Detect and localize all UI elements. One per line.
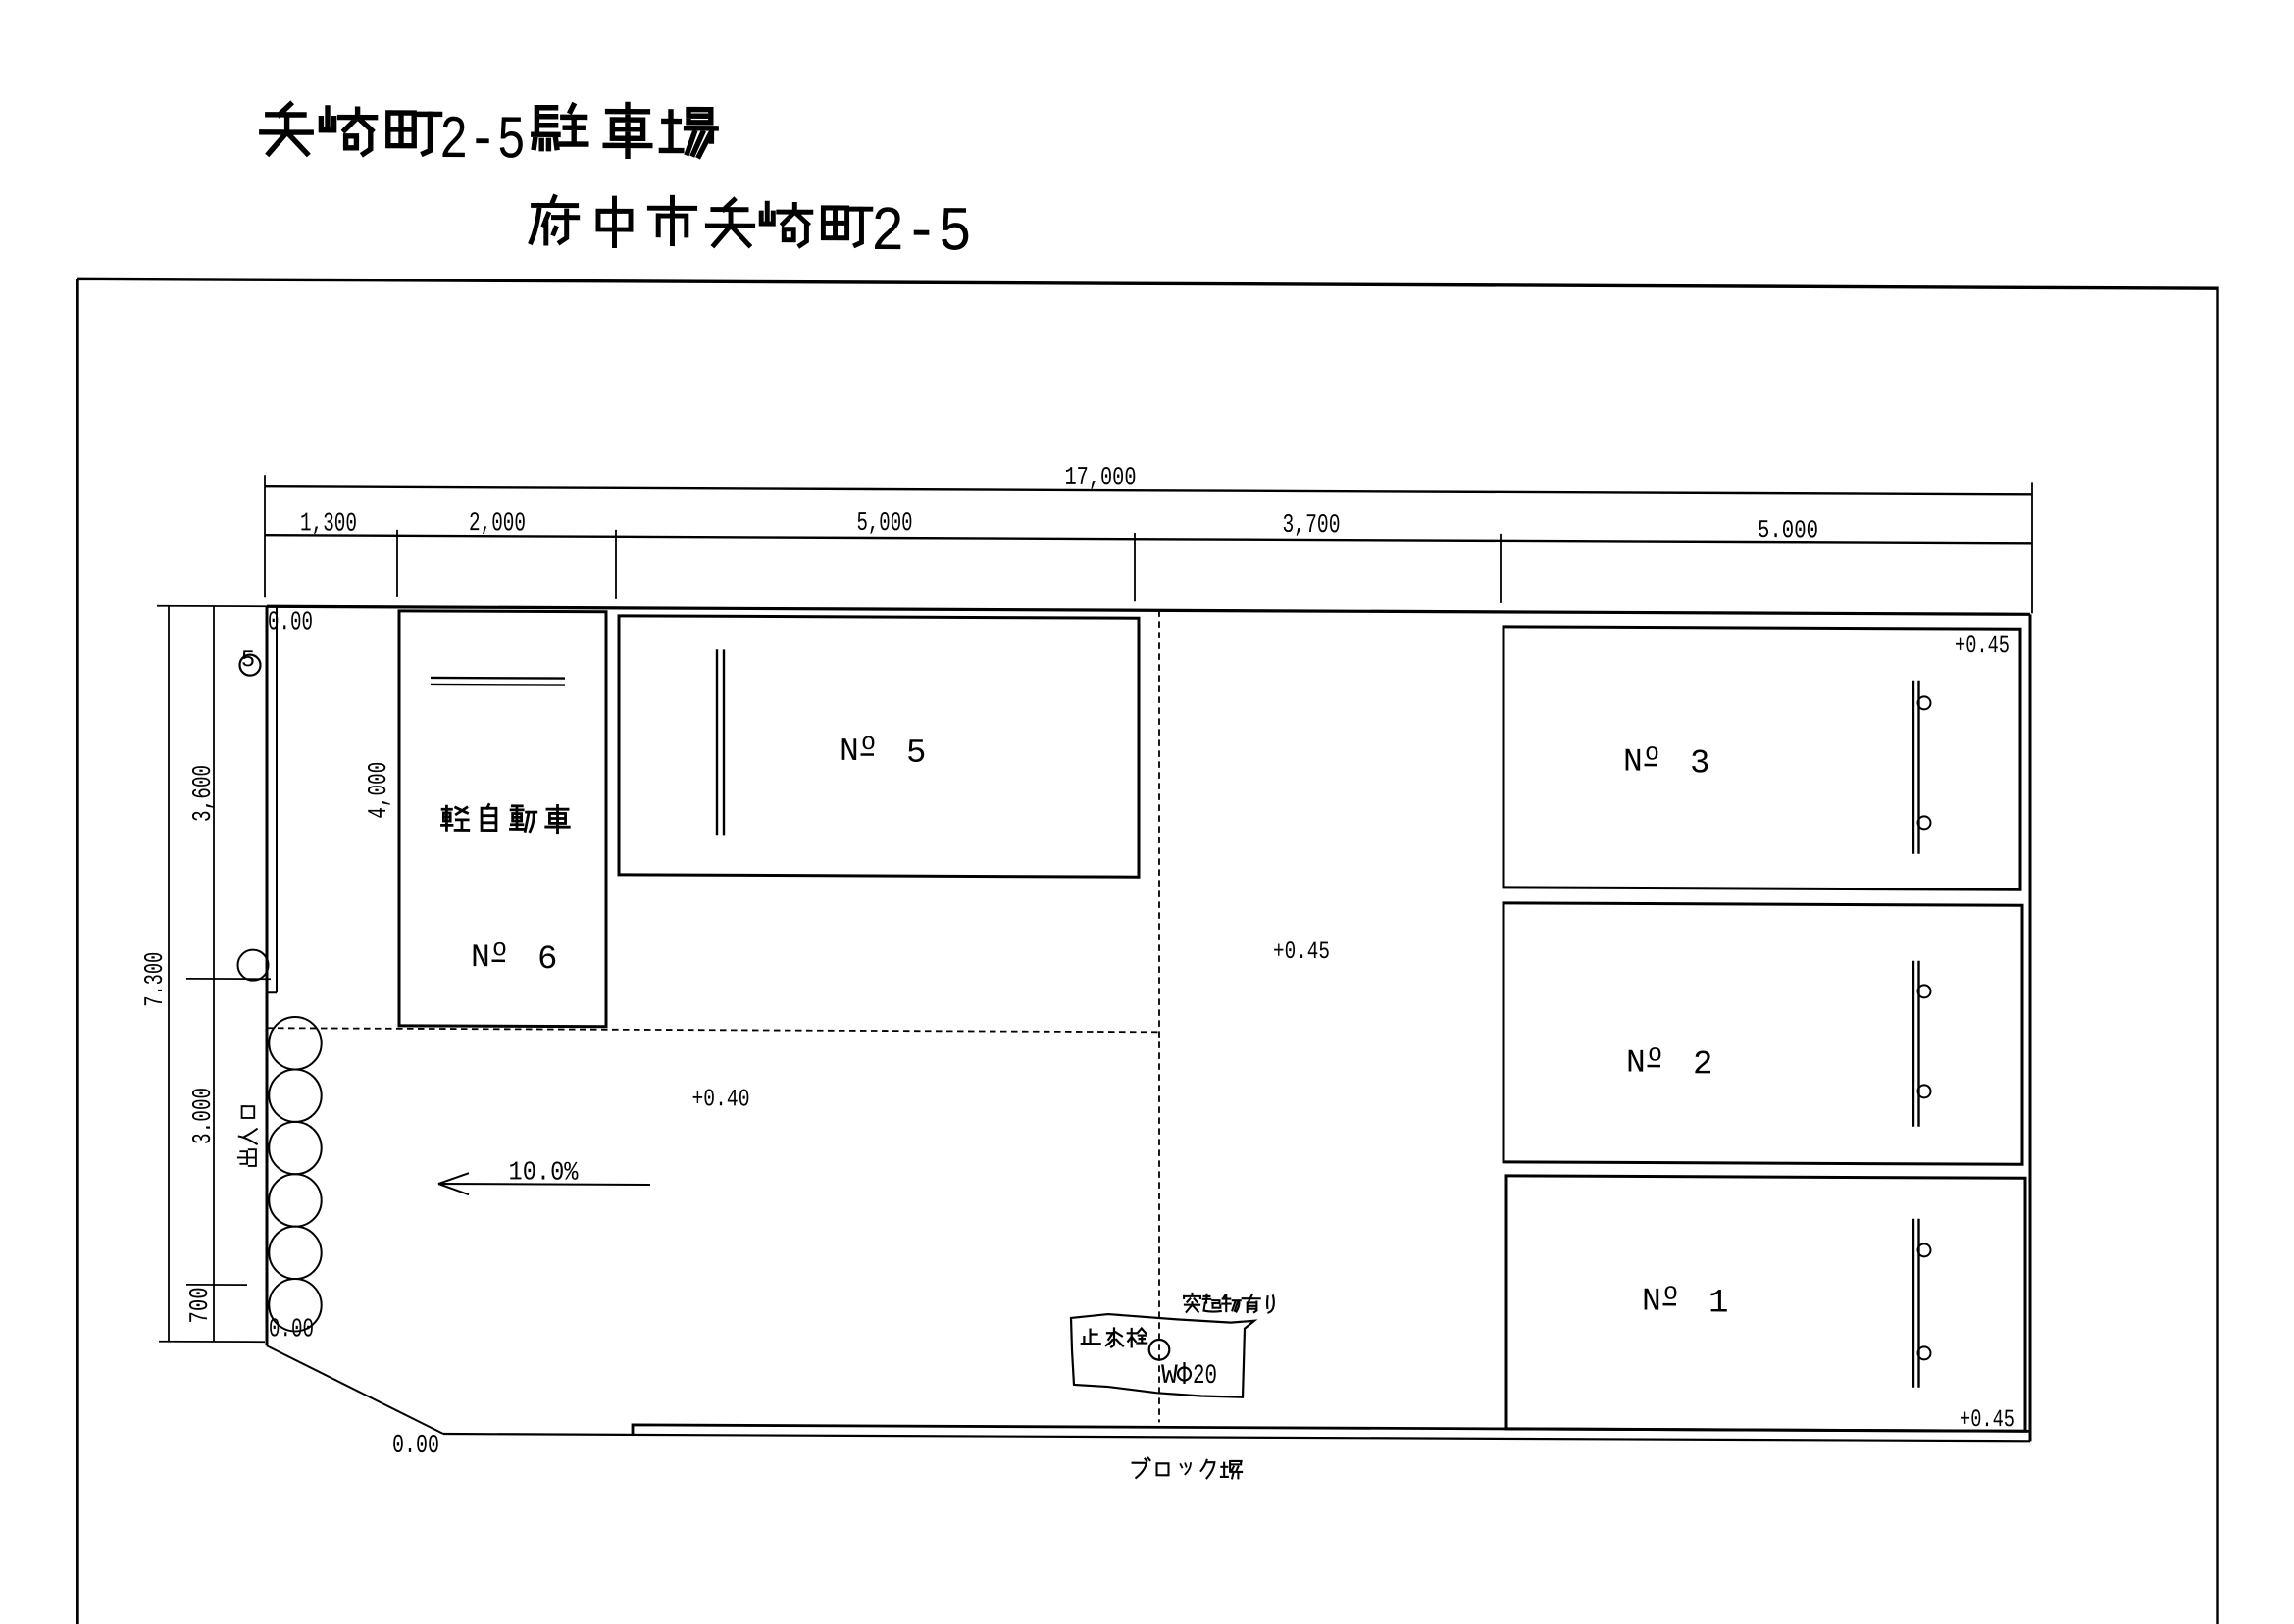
svg-text:2: 2: [1693, 1046, 1712, 1084]
svg-text:0.00: 0.00: [392, 1432, 439, 1461]
svg-text:2,000: 2,000: [469, 509, 526, 538]
svg-text:1,300: 1,300: [300, 509, 357, 538]
svg-text:700: 700: [186, 1287, 216, 1323]
svg-text:o: o: [1645, 739, 1659, 768]
svg-text:0.00: 0.00: [268, 608, 313, 637]
svg-text:N: N: [471, 939, 490, 976]
svg-text:o: o: [861, 729, 876, 757]
svg-text:3,600: 3,600: [189, 765, 219, 822]
svg-text:3: 3: [1690, 745, 1709, 783]
svg-text:4,000: 4,000: [365, 762, 394, 819]
svg-text:+0.45: +0.45: [1955, 632, 2010, 660]
svg-text:+0.45: +0.45: [1273, 938, 1330, 966]
svg-text:3.000: 3.000: [189, 1088, 219, 1144]
svg-text:N: N: [1623, 743, 1643, 780]
svg-text:o: o: [1663, 1279, 1678, 1307]
svg-text:W: W: [1161, 1361, 1178, 1392]
svg-text:6: 6: [537, 941, 557, 979]
svg-text:5: 5: [906, 736, 926, 773]
svg-text:2-5: 2-5: [439, 106, 526, 176]
svg-text:3,700: 3,700: [1283, 511, 1341, 540]
svg-text:N: N: [1642, 1284, 1661, 1320]
svg-text:2-5: 2-5: [871, 198, 972, 269]
svg-text:+0.40: +0.40: [692, 1085, 750, 1113]
svg-text:1: 1: [1708, 1285, 1728, 1322]
svg-text:5.000: 5.000: [1758, 517, 1818, 546]
svg-text:7.300: 7.300: [141, 952, 171, 1007]
svg-text:o: o: [492, 935, 507, 963]
svg-text:N: N: [840, 734, 859, 770]
svg-text:o: o: [1648, 1040, 1662, 1069]
svg-text:5,000: 5,000: [857, 509, 913, 538]
svg-text:20: 20: [1193, 1361, 1217, 1392]
svg-text:17,000: 17,000: [1064, 464, 1136, 493]
svg-text:N: N: [1626, 1044, 1646, 1081]
svg-text:5: 5: [241, 647, 255, 674]
